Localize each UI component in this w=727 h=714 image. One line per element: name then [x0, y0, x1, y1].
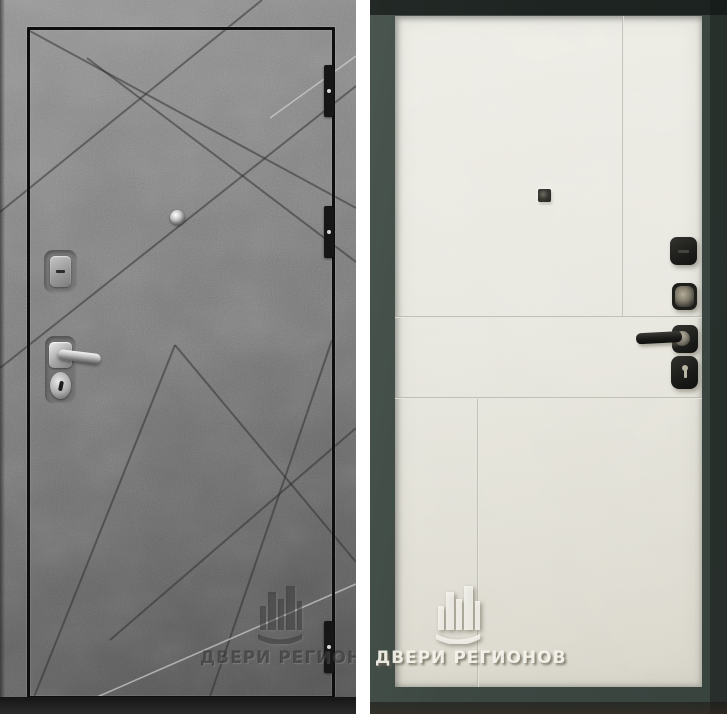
thumbturn-bar-icon — [678, 250, 689, 253]
lock-cylinder — [50, 372, 71, 399]
panel-groove-vertical — [622, 16, 624, 316]
hinge-pin — [327, 89, 331, 93]
door-bottom-shadow — [0, 697, 356, 714]
deadbolt-thumbturn — [670, 237, 697, 265]
panel-groove-vertical — [477, 399, 479, 687]
hinge-bottom-icon — [324, 621, 334, 673]
interior-door-leaf — [395, 16, 702, 687]
peephole-icon — [538, 189, 551, 202]
panel-groove-horizontal — [395, 397, 702, 399]
hinge-top-icon — [324, 65, 334, 117]
cylinder-core — [675, 286, 694, 307]
frame-top-shadow — [370, 0, 727, 15]
threshold-shadow — [370, 702, 727, 714]
leaf-blotch-texture — [395, 16, 702, 687]
keyhole-icon — [684, 369, 687, 378]
keyhole-slot-icon — [58, 381, 64, 392]
hinge-middle-icon — [324, 206, 334, 258]
peephole-icon — [170, 210, 185, 225]
hinge-pin — [327, 230, 331, 234]
door-interior-panel: ДВЕРИ РЕГИОНОВ — [370, 0, 727, 714]
upper-lock-recess — [44, 250, 77, 293]
left-edge-shadow — [0, 0, 5, 714]
keyhole-escutcheon — [671, 356, 698, 389]
door-exterior-panel: ДВЕРИ РЕГИОНОВ — [0, 0, 356, 714]
leaf-grain-texture — [395, 16, 702, 687]
panel-groove-horizontal — [395, 316, 702, 318]
upper-lock-keyhole-plate — [50, 256, 71, 287]
door-product-photo: ДВЕРИ РЕГИОНОВ — [0, 0, 727, 714]
frame-right-shadow — [710, 0, 727, 714]
lock-cylinder — [672, 283, 697, 310]
hinge-pin — [327, 645, 331, 649]
keyhole-slit-icon — [56, 270, 65, 273]
handle-lock-recess — [45, 336, 76, 404]
